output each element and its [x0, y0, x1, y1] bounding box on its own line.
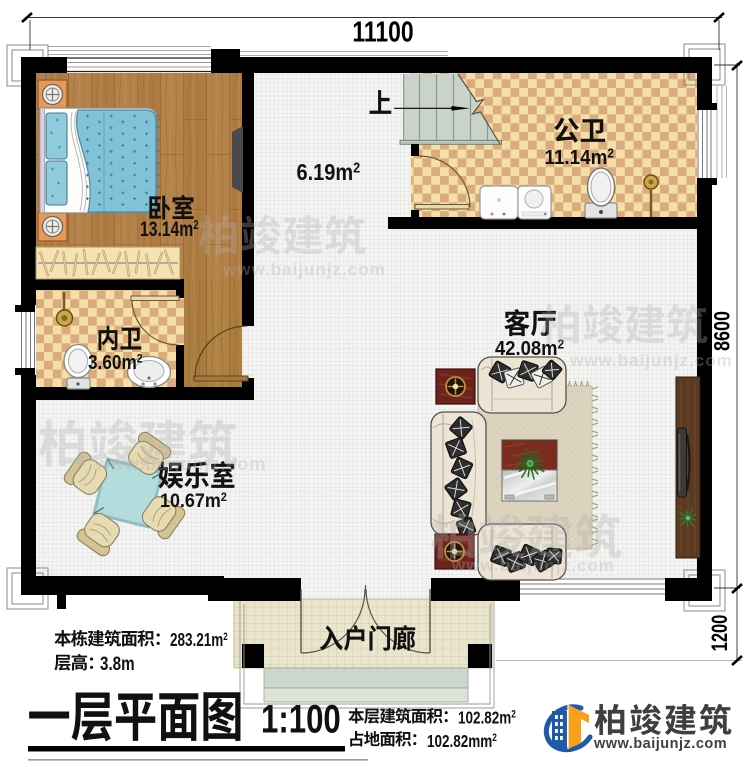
svg-text:www.baijunjz.com: www.baijunjz.com — [569, 351, 733, 370]
svg-text:www.baijunjz.com: www.baijunjz.com — [451, 556, 615, 575]
svg-text:10.67m2: 10.67m2 — [160, 489, 227, 511]
svg-text:www.baijunjz.com: www.baijunjz.com — [222, 260, 386, 279]
svg-text:13.14m2: 13.14m2 — [140, 217, 198, 241]
svg-text:www.baijunjz.com: www.baijunjz.com — [94, 454, 266, 474]
svg-text:11.14m2: 11.14m2 — [545, 146, 615, 169]
svg-text:102.82mm2: 102.82mm2 — [427, 732, 497, 751]
svg-text:1200: 1200 — [708, 614, 733, 651]
svg-text:1:100: 1:100 — [261, 697, 341, 741]
svg-text:6.19m2: 6.19m2 — [297, 158, 361, 185]
svg-text:102.82m2: 102.82m2 — [458, 709, 516, 728]
svg-text:www.baijunjz.com: www.baijunjz.com — [593, 736, 727, 752]
svg-text:11100: 11100 — [352, 15, 413, 48]
svg-text:3.8m: 3.8m — [100, 652, 135, 674]
svg-text:3.60m2: 3.60m2 — [88, 351, 142, 374]
svg-text:8600: 8600 — [711, 311, 735, 351]
svg-text:283.21m2: 283.21m2 — [170, 630, 228, 651]
svg-text:42.08m2: 42.08m2 — [495, 337, 564, 360]
